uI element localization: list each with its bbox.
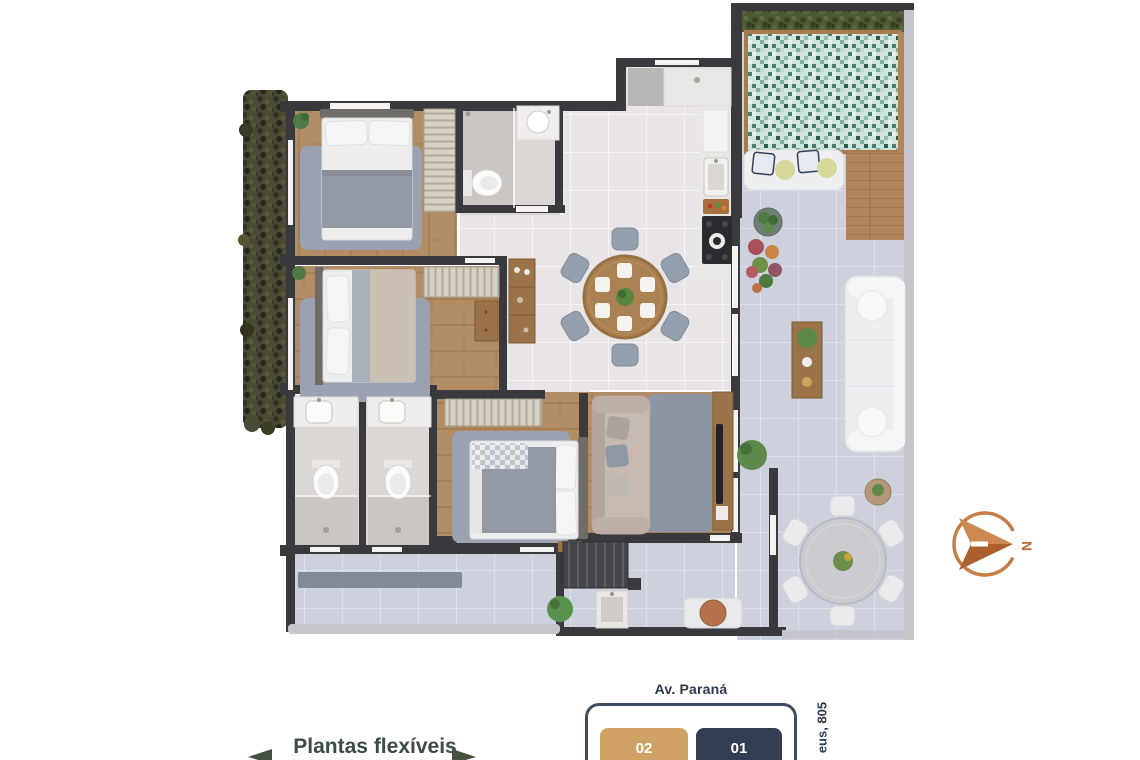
unit-block-01[interactable]: 01 xyxy=(696,728,782,760)
compass-icon: N xyxy=(945,506,1037,588)
headboard xyxy=(320,109,414,118)
units-box: 02 01 xyxy=(585,703,797,760)
brochure-page: N Plantas flexíveis Av. Paraná 02 01 eus… xyxy=(0,0,1140,760)
street-top-label: Av. Paraná xyxy=(585,681,797,697)
hallway-floor xyxy=(292,552,560,626)
plaid-throw xyxy=(472,443,528,469)
flexible-plans-label: Plantas flexíveis xyxy=(280,735,470,759)
counter xyxy=(664,68,731,106)
centerpiece xyxy=(616,288,634,306)
plant xyxy=(292,266,306,280)
headboard xyxy=(315,267,323,385)
pool-bench xyxy=(744,150,844,190)
stool xyxy=(700,600,726,626)
dresser xyxy=(475,301,498,341)
tv xyxy=(716,424,723,504)
pool xyxy=(748,34,898,150)
plant xyxy=(547,596,573,622)
sink xyxy=(379,401,405,423)
hallway-mat xyxy=(298,572,462,588)
floor-plan xyxy=(0,0,1140,760)
next-arrow-icon[interactable] xyxy=(452,748,478,760)
fridge xyxy=(703,110,728,152)
plant xyxy=(737,440,767,470)
street-side-label: eus, 805 xyxy=(815,698,832,758)
hedge-top xyxy=(742,10,908,32)
headboard xyxy=(578,437,588,539)
unit-block-02[interactable]: 02 xyxy=(600,728,688,760)
tv-room xyxy=(592,392,733,534)
compass-n: N xyxy=(1019,541,1035,551)
cabinet xyxy=(628,68,664,106)
service-shaft xyxy=(563,542,628,588)
sink xyxy=(527,111,549,133)
wardrobe xyxy=(424,109,455,212)
sink xyxy=(306,401,332,423)
rug xyxy=(648,394,712,532)
wardrobe xyxy=(424,267,499,297)
wood-deck xyxy=(846,152,908,240)
toilet-tank xyxy=(463,170,472,196)
wardrobe xyxy=(445,399,542,426)
prev-arrow-icon[interactable] xyxy=(246,748,272,760)
